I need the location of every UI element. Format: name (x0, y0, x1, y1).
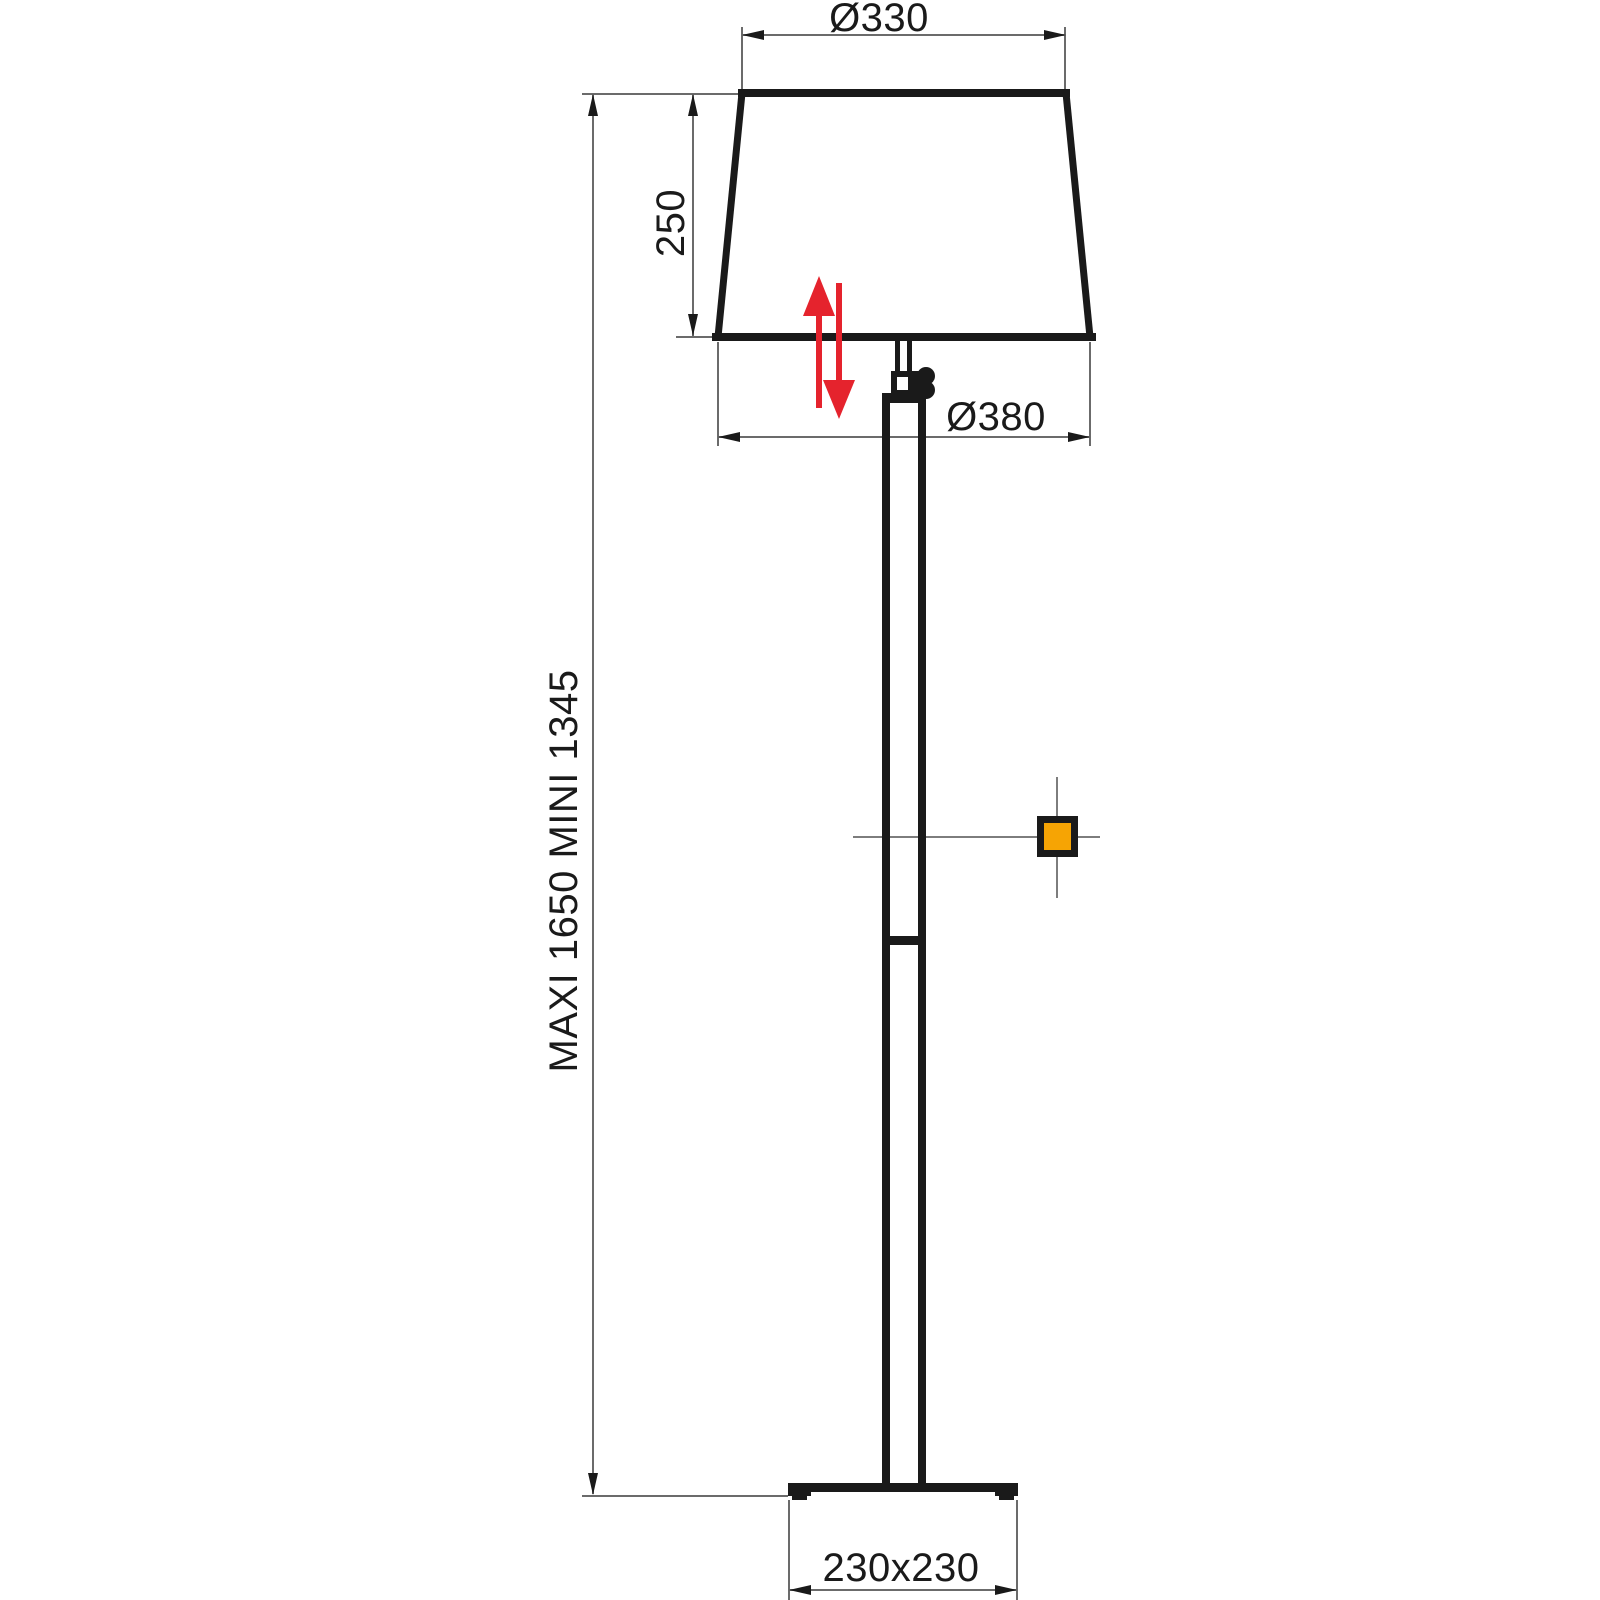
technical-drawing-floor-lamp: Ø330 250 Ø380 MAXI 1650 MINI 1345 230x23… (0, 0, 1600, 1600)
arrow-380-left (718, 432, 740, 442)
shade-left-edge (718, 93, 742, 337)
pole-telescopic-joint (882, 936, 926, 945)
drawing-svg: Ø330 250 Ø380 MAXI 1650 MINI 1345 230x23… (0, 0, 1600, 1600)
arrow-250-up (688, 94, 698, 116)
arrow-230-right (995, 1585, 1017, 1595)
knob-notch (933, 379, 941, 387)
stem-right-line (907, 339, 912, 375)
arrow-250-down (688, 314, 698, 336)
dimension-arrowheads (588, 30, 1090, 1595)
label-shade-top-diameter: Ø330 (829, 0, 929, 40)
arrow-height-down (588, 1473, 598, 1495)
base-plate (788, 1483, 1018, 1492)
label-shade-bottom-diameter: Ø380 (946, 395, 1046, 439)
lamp-stem-clamp (894, 339, 941, 399)
stem-left-line (895, 339, 900, 375)
arrow-380-right (1068, 432, 1090, 442)
adjust-down-arrow-shaft (836, 283, 842, 383)
arrow-height-up (588, 94, 598, 116)
arrow-330-left (742, 30, 764, 40)
base-left-foot-pad (792, 1494, 807, 1500)
adjust-up-arrow-shaft (816, 310, 822, 408)
switch-inner-square (1044, 823, 1071, 850)
adjust-up-arrow-head (803, 276, 835, 316)
arrow-230-left (789, 1585, 811, 1595)
height-adjust-arrows (803, 276, 855, 419)
lamp-shade (712, 93, 1096, 337)
dimension-lines (582, 27, 1090, 1600)
arrow-330-right (1044, 30, 1066, 40)
label-shade-height: 250 (649, 189, 693, 257)
lamp-base (788, 1483, 1018, 1500)
adjust-down-arrow-head (823, 380, 855, 419)
pole-top-cap (882, 393, 926, 403)
label-overall-height: MAXI 1650 MINI 1345 (542, 669, 586, 1072)
label-base-footprint: 230x230 (823, 1546, 980, 1590)
lamp-pole (882, 393, 926, 1483)
clamp-box (894, 374, 911, 393)
switch-symbol (1037, 816, 1078, 857)
base-right-foot-pad (999, 1494, 1014, 1500)
shade-right-edge (1066, 93, 1090, 337)
dimension-labels: Ø330 250 Ø380 MAXI 1650 MINI 1345 230x23… (542, 0, 1046, 1590)
